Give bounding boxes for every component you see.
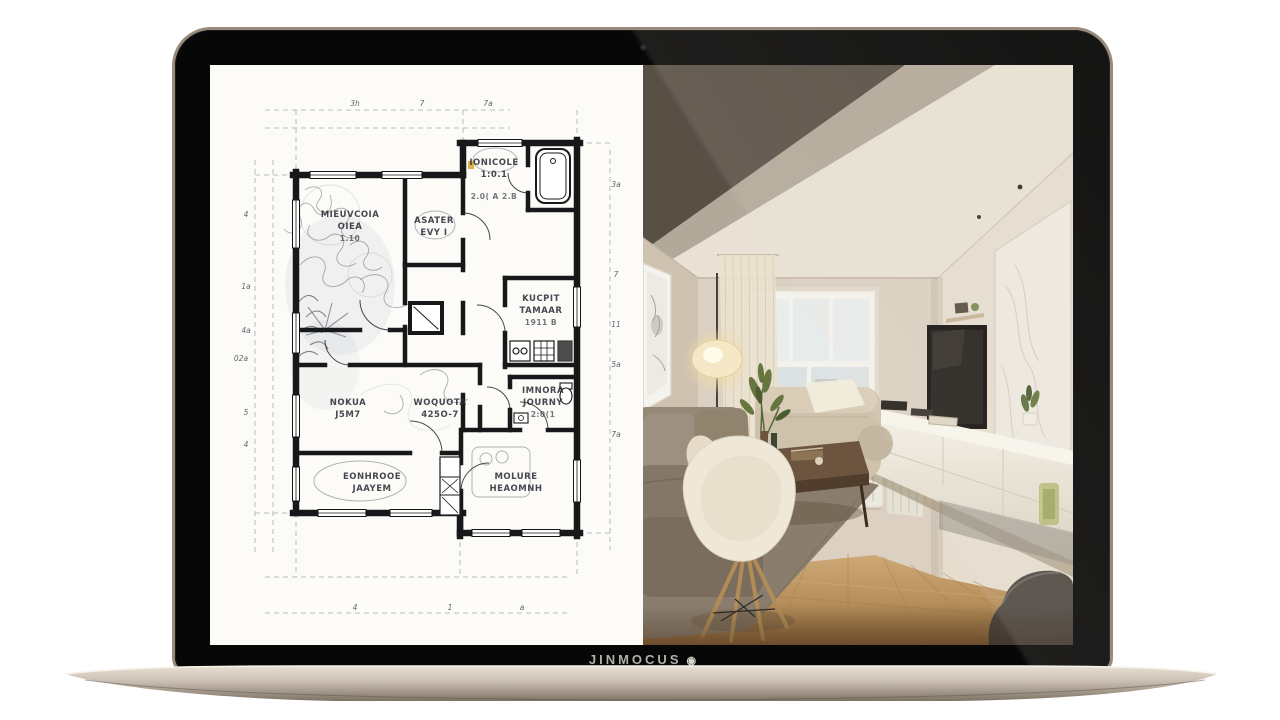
room-label: MIEUVCOIA <box>321 210 380 220</box>
dim-label: 4 <box>353 603 358 612</box>
laptop-screen: 3h 7 7a 3a 7 11 5a 7a 4 1a 4a 02a 5 4 4 … <box>210 65 1073 645</box>
room-label: 2.0( A 2.B <box>471 192 518 201</box>
living-cabinet <box>440 457 460 515</box>
room-label: NOKUA <box>330 398 367 408</box>
room-label: 1.10 <box>340 234 361 243</box>
dim-label: 3h <box>350 99 360 108</box>
dim-label: 02a <box>234 354 249 363</box>
dim-label: 1a <box>241 282 251 291</box>
room-label: EVY I <box>420 228 447 238</box>
dim-label: 5a <box>611 360 621 369</box>
wall-art <box>643 263 671 411</box>
dim-label: 7 <box>614 270 619 279</box>
laptop-lid: 3h 7 7a 3a 7 11 5a 7a 4 1a 4a 02a 5 4 4 … <box>175 30 1110 672</box>
table-cup <box>815 457 823 465</box>
room-label: IMNORA <box>522 386 564 396</box>
dim-label: 7a <box>483 99 493 108</box>
bottom-vignette <box>643 605 1073 645</box>
dim-label: 7 <box>420 99 425 108</box>
room-label: 2:0(1 <box>531 410 556 419</box>
room-label: 1:0.1 <box>481 170 508 180</box>
laptop-base <box>55 640 1230 710</box>
dim-label: 5 <box>244 408 249 417</box>
room-label: WOQUOTA <box>413 398 466 408</box>
room-label: J5M7 <box>334 410 360 420</box>
dim-label: 3a <box>611 180 621 189</box>
interior-render-pane <box>643 65 1073 645</box>
room-label: EONHROOE <box>343 472 401 482</box>
dim-label: 1 <box>448 603 453 612</box>
dim-label: 4 <box>244 210 249 219</box>
floor-plan-sketch: 3h 7 7a 3a 7 11 5a 7a 4 1a 4a 02a 5 4 4 … <box>210 65 643 645</box>
room-label: JOURNY <box>522 398 563 408</box>
laptop-mockup: 3h 7 7a 3a 7 11 5a 7a 4 1a 4a 02a 5 4 4 … <box>0 0 1280 720</box>
console-black-object <box>881 400 907 410</box>
room-label: JAAYEM <box>352 484 392 494</box>
room-label: IONICOLE <box>469 158 518 168</box>
room-label: 425O-7 <box>421 410 459 420</box>
room-label: KUCPIT <box>522 294 560 304</box>
dim-label: 4a <box>241 326 251 335</box>
dim-label: 7a <box>611 430 621 439</box>
room-label: 1911 B <box>525 318 557 327</box>
tv <box>927 325 987 429</box>
room-label: ASATER <box>414 216 454 226</box>
kitchen-appliances <box>510 341 572 361</box>
webcam-icon <box>640 45 645 50</box>
dim-label: a <box>520 603 525 612</box>
bathtub <box>536 149 570 203</box>
room-label: OIEA <box>338 222 363 232</box>
room-label: MOLURE <box>494 472 537 482</box>
room-label: TAMAAR <box>520 306 563 316</box>
room-label: HEAOMNH <box>490 484 543 494</box>
floor-plan-pane: 3h 7 7a 3a 7 11 5a 7a 4 1a 4a 02a 5 4 4 … <box>210 65 643 645</box>
dim-label: 4 <box>244 440 249 449</box>
pencil-tint <box>285 215 395 410</box>
dim-label: 11 <box>611 320 621 329</box>
interior-render <box>643 65 1073 645</box>
console-vase <box>1039 483 1059 525</box>
